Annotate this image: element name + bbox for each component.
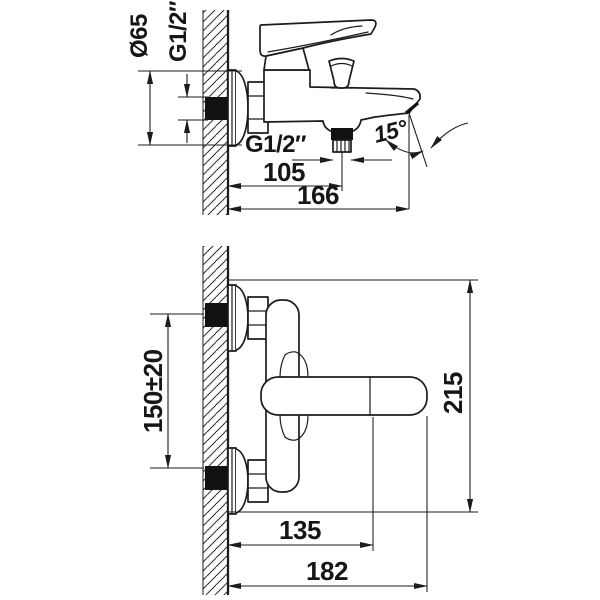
wall-section-side [203, 10, 228, 215]
dim-135-label: 135 [279, 515, 321, 545]
front-view: 150±20 215 135 182 [138, 246, 478, 595]
spout-angle-label: 15° [371, 114, 411, 148]
outlet-thread-block [331, 128, 353, 140]
union-nut [248, 460, 268, 502]
dim-166-label: 166 [297, 180, 339, 210]
dim-215-label: 215 [438, 372, 468, 414]
dim-outlet-thread: G1/2″ [245, 131, 392, 160]
technical-drawing-canvas: Ø65 G1/2″ G1/2″ 105 166 [0, 0, 600, 600]
outlet-stub [333, 140, 351, 152]
lower-flange [228, 448, 268, 514]
outlet-thread-label: G1/2″ [245, 131, 307, 158]
bath-mixer-dimension-drawing: Ø65 G1/2″ G1/2″ 105 166 [0, 0, 600, 600]
upper-flange [228, 285, 268, 351]
wall-hatch [203, 246, 228, 595]
angle-leg-line [409, 113, 427, 167]
flange-diameter-label: Ø65 [126, 14, 153, 58]
eccentric-union-lower [205, 466, 228, 490]
flange-dome [236, 449, 248, 513]
side-view: Ø65 G1/2″ G1/2″ 105 166 [126, 0, 468, 215]
flange-dome [236, 286, 248, 350]
dim-wall-to-handle-tip: 182 [228, 416, 427, 592]
handle-bar [261, 377, 427, 415]
dim-150-label: 150±20 [138, 349, 168, 433]
mixer-body-front [261, 300, 427, 492]
flow-arrow [431, 123, 468, 148]
eccentric-union-upper [205, 303, 228, 327]
dim-connection-spacing: 150±20 [138, 314, 204, 468]
union-nut [248, 297, 268, 339]
wall-thread-label: G1/2″ [165, 0, 192, 62]
dim-spout-angle: 15° [371, 113, 468, 167]
wall-section-front [203, 246, 228, 595]
eccentric-union-section [205, 97, 228, 120]
dim-182-label: 182 [306, 556, 348, 586]
